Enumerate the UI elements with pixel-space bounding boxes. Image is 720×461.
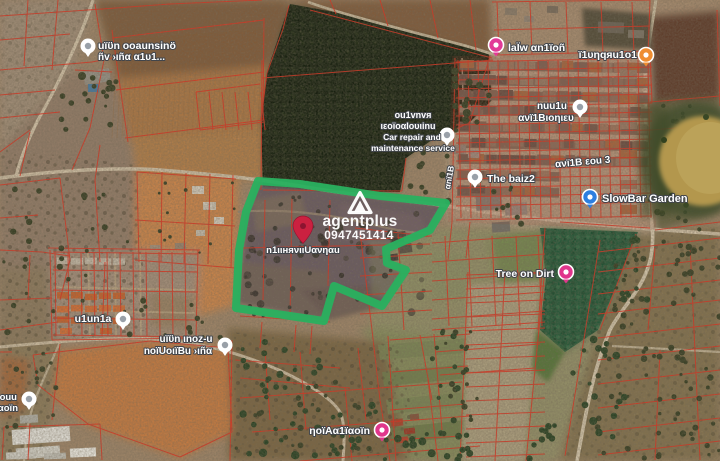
svg-text:laΪw αn1ïoñ: laΪw αn1ïoñ [508, 41, 565, 54]
svg-text:u1un1a: u1un1a [75, 313, 112, 325]
svg-text:ηοïΑα1ïαoïn: ηοïΑα1ïαoïn [309, 425, 370, 437]
svg-text:uïϋn ιnoz-u: uïϋn ιnoz-u [159, 334, 212, 345]
svg-text:Tree on Dirt: Tree on Dirt [496, 268, 555, 280]
svg-text:0947451414: 0947451414 [324, 228, 394, 242]
svg-text:maintenance service: maintenance service [371, 143, 455, 153]
svg-text:ιouu: ιouu [0, 392, 17, 403]
svg-text:The baiz2: The baiz2 [487, 173, 535, 185]
svg-text:nuu1u: nuu1u [537, 101, 567, 112]
svg-text:ou1vnvя: ou1vnvя [395, 110, 432, 120]
svg-text:ιεoïoαΙoυιinu: ιεoïoαΙoυιinu [380, 121, 435, 131]
svg-text:ïαoïn: ïαoïn [0, 403, 18, 414]
svg-text:SlowBar Garden: SlowBar Garden [602, 193, 688, 205]
svg-text:ανï1Βιοηιευ: ανï1Βιοηιευ [518, 113, 574, 124]
svg-text:uïϋn ooaunsinö: uïϋn ooaunsinö [98, 40, 176, 52]
svg-text:ñv ›ιñα α1υ1...: ñv ›ιñα α1υ1... [98, 52, 165, 63]
svg-text:noïUoιïΒu ›ιñα: noïUoιïΒu ›ιñα [144, 346, 213, 357]
svg-text:Car repair and: Car repair and [383, 132, 441, 142]
svg-text:n1ιιняνιιUανηαu: n1ιιняνιιUανηαu [266, 245, 340, 256]
svg-text:ï1υηqяu1ο1: ï1υηqяu1ο1 [578, 49, 637, 61]
